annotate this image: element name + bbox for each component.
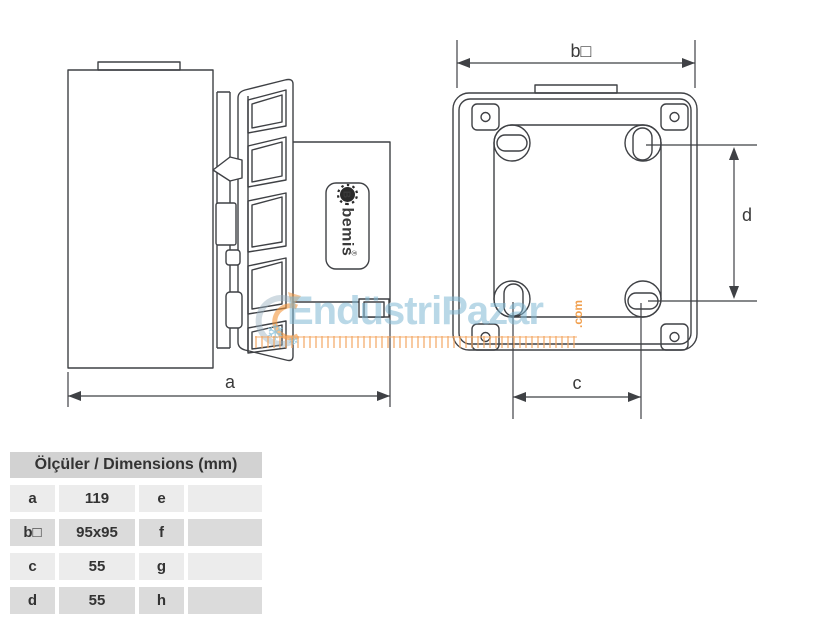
- side-view: B bemis ® a: [68, 62, 390, 407]
- table-row: b□ 95x95 f: [10, 519, 262, 546]
- mounting-lug: [216, 203, 236, 245]
- dimension-a-label: a: [225, 372, 236, 392]
- dim-value-cell: 95x95: [59, 519, 135, 546]
- dim-value-cell: [188, 519, 262, 546]
- table-row: a 119 e: [10, 485, 262, 512]
- arrow-left-icon: [457, 58, 470, 68]
- table-row: d 55 h: [10, 587, 262, 614]
- dimensions-table: Ölçüler / Dimensions (mm) a 119 e b□ 95x…: [10, 452, 262, 614]
- screw-hole-icon: [670, 333, 679, 342]
- brand-plate: B bemis ®: [326, 183, 369, 269]
- front-view: b□ d c: [453, 40, 757, 419]
- dim-value-cell: [188, 485, 262, 512]
- dim-label-cell: b□: [10, 519, 55, 546]
- bemis-logo-text: bemis: [339, 208, 356, 257]
- arrow-left-icon: [68, 391, 81, 401]
- dimension-b: b□: [457, 40, 695, 88]
- screw-hole-icon: [670, 113, 679, 122]
- dimension-b-label: b□: [571, 41, 592, 61]
- dimension-d-label: d: [742, 205, 752, 225]
- dim-value-cell: [188, 553, 262, 580]
- bottom-hook: [226, 292, 242, 328]
- mounting-frame: [213, 80, 293, 361]
- technical-drawing-page: B bemis ® a: [0, 0, 825, 625]
- dim-label-cell: h: [139, 587, 184, 614]
- dim-value-cell: 55: [59, 553, 135, 580]
- arrow-right-icon: [377, 391, 390, 401]
- slot-horizontal: [497, 135, 527, 151]
- bemis-icon-letter: B: [341, 191, 352, 198]
- dimensions-table-header: Ölçüler / Dimensions (mm): [10, 452, 262, 478]
- mounting-slots: [494, 125, 661, 317]
- frame-window: [248, 193, 286, 252]
- frame-window: [248, 90, 286, 133]
- arrow-up-icon: [729, 147, 739, 160]
- screw-hole-icon: [481, 113, 490, 122]
- screw-hole-icon: [481, 333, 490, 342]
- dim-label-cell: a: [10, 485, 55, 512]
- bemis-registered-mark: ®: [350, 251, 358, 257]
- dim-label-cell: g: [139, 553, 184, 580]
- boss-circle: [494, 281, 530, 317]
- boss-circle: [625, 281, 661, 317]
- dim-value-cell: [188, 587, 262, 614]
- dim-value-cell: 55: [59, 587, 135, 614]
- dimension-d: d: [646, 145, 757, 301]
- dimension-c-label: c: [573, 373, 582, 393]
- arrow-down-icon: [729, 286, 739, 299]
- boss-circle: [625, 125, 661, 161]
- corner-screw-pads: [472, 104, 688, 350]
- arrow-left-icon: [513, 392, 526, 402]
- slot-vertical: [633, 128, 652, 160]
- arrow-right-icon: [628, 392, 641, 402]
- dimension-c: c: [513, 302, 641, 419]
- recess-outline: [494, 125, 661, 317]
- enclosure-top-tab: [98, 62, 180, 70]
- dim-label-cell: e: [139, 485, 184, 512]
- dim-label-cell: d: [10, 587, 55, 614]
- dim-value-cell: 119: [59, 485, 135, 512]
- enclosure-body: [68, 70, 213, 368]
- dim-label-cell: f: [139, 519, 184, 546]
- frame-top-tab: [535, 85, 617, 93]
- arrow-right-icon: [682, 58, 695, 68]
- small-hook: [226, 250, 240, 265]
- table-row: c 55 g: [10, 553, 262, 580]
- boss-circle: [494, 125, 530, 161]
- dim-label-cell: c: [10, 553, 55, 580]
